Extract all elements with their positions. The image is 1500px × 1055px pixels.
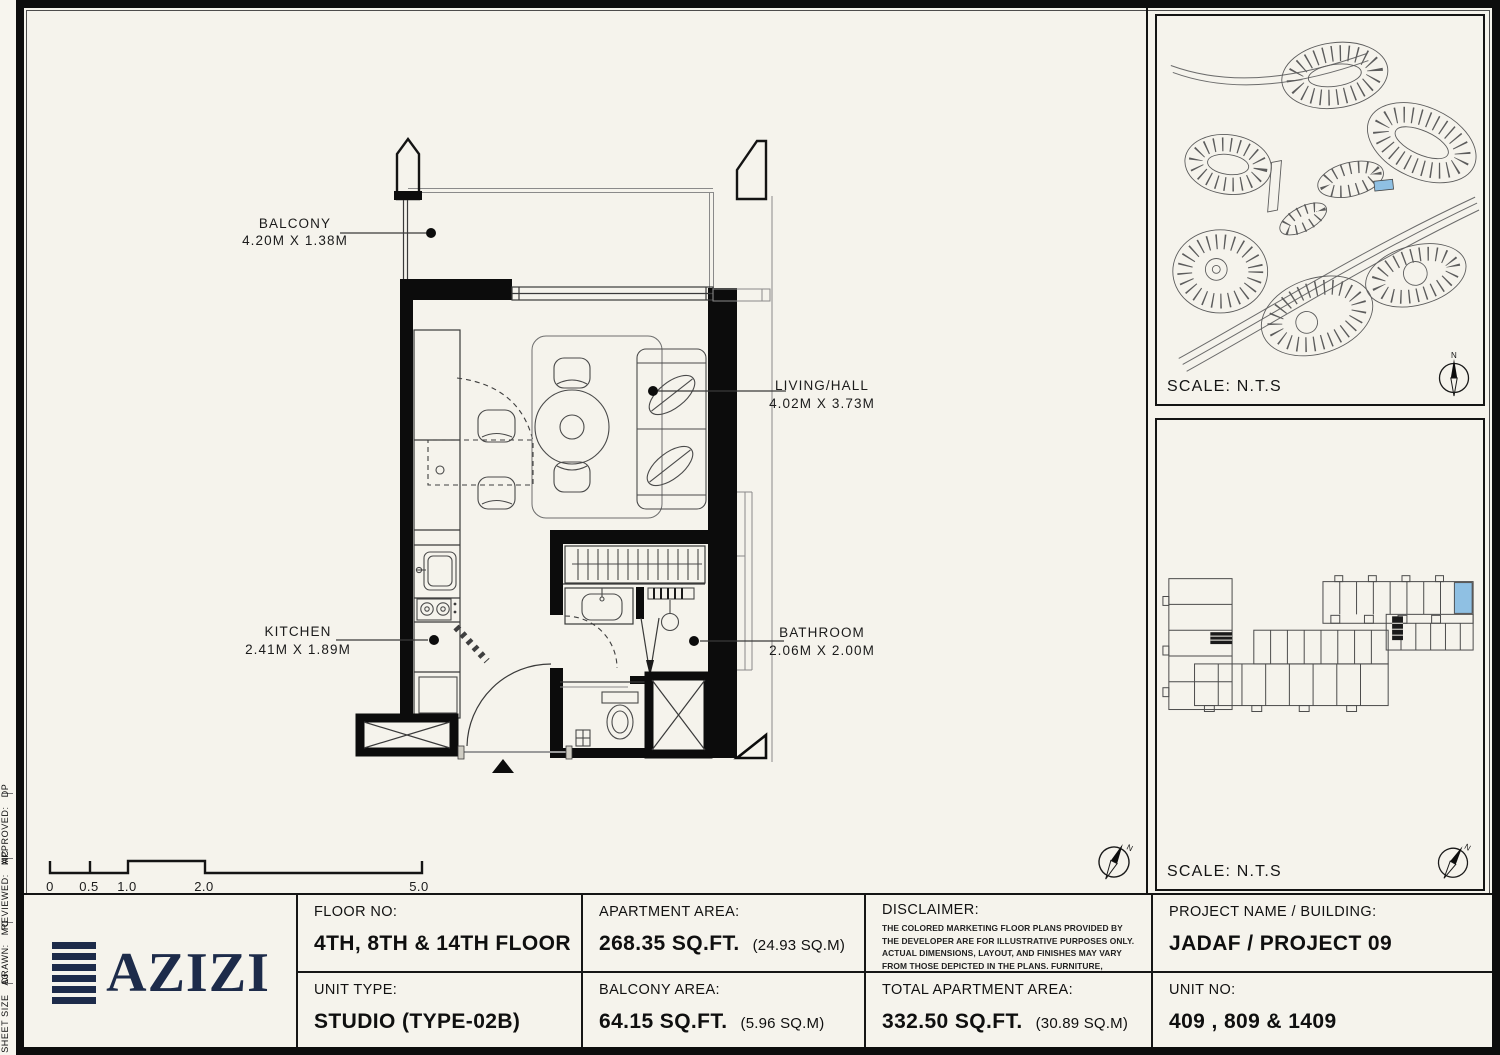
unit-type-cell: UNIT TYPE: STUDIO (TYPE-02B) [296, 971, 581, 1047]
building-key-plan-box: SCALE: N.T.S N [1155, 418, 1485, 891]
wardrobe [563, 546, 705, 584]
living-label: LIVING/HALL [775, 378, 869, 393]
total-area-cell: TOTAL APARTMENT AREA: 332.50 SQ.FT.(30.8… [864, 971, 1151, 1047]
floor-plan-panel: BALCONY 4.20M X 1.38M LIVING/HALL 4.02M … [24, 8, 1148, 893]
wc-cistern [602, 692, 638, 703]
key-plan-drawing [1157, 420, 1483, 889]
highlighted-unit [1454, 583, 1472, 614]
parcel-cluster [1359, 233, 1474, 317]
highlighted-plot [1374, 179, 1394, 191]
unit-no-cell: UNIT NO: 409 , 809 & 1409 [1151, 971, 1492, 1047]
disclaimer-label: DISCLAIMER: [882, 902, 1137, 918]
sheet-frame: BALCONY 4.20M X 1.38M LIVING/HALL 4.02M … [16, 0, 1500, 1055]
parcel-sliver [1268, 161, 1282, 212]
balcony-railing [408, 189, 714, 289]
approved-value: DP [0, 784, 10, 798]
scale-bar: 0 0.5 1.0 2.0 5.0 [46, 861, 429, 893]
floor-no-value: 4TH, 8TH & 14TH FLOOR [314, 932, 567, 956]
azizi-logo: AZIZI [52, 942, 270, 1004]
apartment-area-imperial: 268.35 SQ.FT. [599, 932, 740, 955]
stair-core [1392, 616, 1403, 640]
kitchen-counter [414, 330, 460, 718]
counter-overhang [428, 378, 533, 485]
apartment-area-cell: APARTMENT AREA: 268.35 SQ.FT.(24.93 SQ.M… [581, 895, 864, 971]
north-compass-icon: N [1433, 835, 1475, 883]
compass-n-label: N [1451, 351, 1457, 360]
balcony-pier-left [394, 139, 422, 281]
parcel-cluster [1275, 196, 1331, 241]
shaft-bottom-right [649, 676, 708, 754]
project-name-value: JADAF / PROJECT 09 [1169, 932, 1478, 956]
living-dims: 4.02M X 3.73M [769, 396, 875, 411]
floor-no-cell: FLOOR NO: 4TH, 8TH & 14TH FLOOR [296, 895, 581, 971]
stair-core [1210, 632, 1232, 644]
sheet-revision-strip: APPROVED:DP REVIEWED:MC DRAWN:MC SHEET S… [0, 0, 17, 1055]
disclaimer-cell: DISCLAIMER: THE COLORED MARKETING FLOOR … [864, 895, 1151, 971]
kitchen-label: KITCHEN [265, 624, 332, 639]
bathroom-dims: 2.06M X 2.00M [769, 643, 875, 658]
project-name-label: PROJECT NAME / BUILDING: [1169, 904, 1478, 920]
wc-bowl [607, 705, 633, 739]
chair [478, 410, 515, 442]
north-compass-icon: N [1092, 834, 1138, 886]
balcony-pier-right [737, 141, 766, 199]
chair [554, 358, 590, 388]
floor-plan-sheet: APPROVED:DP REVIEWED:MC DRAWN:MC SHEET S… [0, 0, 1500, 1055]
unit-no-value: 409 , 809 & 1409 [1169, 1010, 1478, 1034]
title-block: AZIZI FLOOR NO: 4TH, 8TH & 14TH FLOOR AP… [24, 893, 1492, 1047]
dining-table [535, 390, 609, 464]
total-area-label: TOTAL APARTMENT AREA: [882, 982, 1137, 998]
floor-plan-drawing: BALCONY 4.20M X 1.38M LIVING/HALL 4.02M … [24, 8, 1146, 893]
vanity-counter [565, 588, 633, 624]
balcony-area-cell: BALCONY AREA: 64.15 SQ.FT.(5.96 SQ.M) [581, 971, 864, 1047]
sheet-size-label: SHEET SIZEA3 [0, 958, 16, 1055]
stove [417, 599, 456, 620]
azizi-logo-text: AZIZI [106, 945, 270, 1001]
azizi-logo-mark-icon [52, 942, 96, 1004]
shower [648, 588, 694, 631]
wash-basin [582, 594, 622, 620]
parcel-cluster [1181, 129, 1275, 200]
sheet-size-caption: SHEET SIZE [0, 994, 10, 1052]
balcony-dims: 4.20M X 1.38M [242, 233, 348, 248]
scale-tick-2: 2.0 [194, 879, 214, 893]
scale-tick-1: 1.0 [117, 879, 137, 893]
total-area-value: 332.50 SQ.FT.(30.89 SQ.M) [882, 1010, 1137, 1034]
unit-no-label: UNIT NO: [1169, 982, 1478, 998]
apartment-area-value: 268.35 SQ.FT.(24.93 SQ.M) [599, 932, 850, 956]
site-map-box: SCALE: N.T.S N [1155, 14, 1485, 406]
balcony-area-imperial: 64.15 SQ.FT. [599, 1010, 728, 1033]
unit-type-value: STUDIO (TYPE-02B) [314, 1010, 567, 1034]
total-area-metric: (30.89 SQ.M) [1036, 1015, 1128, 1032]
sofa [637, 349, 706, 509]
balcony-label: BALCONY [259, 216, 331, 231]
key-plan-column: SCALE: N.T.S N [1150, 8, 1492, 893]
toilet-room [560, 682, 645, 746]
unit-type-label: UNIT TYPE: [314, 982, 567, 998]
north-compass-icon: N [1433, 350, 1475, 398]
total-area-imperial: 332.50 SQ.FT. [882, 1010, 1023, 1033]
bathroom-label: BATHROOM [779, 625, 865, 640]
balcony-area-value: 64.15 SQ.FT.(5.96 SQ.M) [599, 1010, 850, 1034]
site-map-scale: SCALE: N.T.S [1167, 378, 1282, 396]
parcel-cluster [1314, 155, 1387, 204]
shower-door [641, 618, 659, 676]
building-outline [1163, 576, 1473, 712]
logo-cell: AZIZI [24, 895, 296, 1047]
duct-lines [737, 492, 752, 670]
site-map-drawing [1157, 16, 1483, 404]
parcel-cluster [1251, 262, 1383, 369]
chair [554, 462, 590, 492]
project-name-cell: PROJECT NAME / BUILDING: JADAF / PROJECT… [1151, 895, 1492, 971]
drawn-value: MC [0, 920, 10, 935]
kitchen-dims: 2.41M X 1.89M [245, 642, 351, 657]
parcel-cluster [1173, 230, 1268, 313]
balcony-area-metric: (5.96 SQ.M) [741, 1015, 825, 1032]
reviewed-value: MC [0, 850, 10, 865]
key-plan-scale: SCALE: N.T.S [1167, 863, 1282, 881]
apartment-area-metric: (24.93 SQ.M) [753, 937, 845, 954]
apartment-area-label: APARTMENT AREA: [599, 904, 850, 920]
parcel-cluster [1277, 36, 1392, 116]
kitchen-hatch-door [456, 627, 487, 661]
chair [478, 477, 515, 509]
dining-set [478, 336, 662, 518]
sheet-size-value: A3 [0, 973, 10, 985]
compass-n-label: N [1463, 842, 1473, 853]
scale-tick-0: 0 [46, 879, 54, 893]
floor-no-label: FLOOR NO: [314, 904, 567, 920]
entry-marker-icon [492, 759, 514, 773]
shaft-bottom-left [360, 718, 454, 752]
kitchen-sink [416, 552, 456, 590]
wall-end-pier [737, 735, 766, 758]
balcony-area-label: BALCONY AREA: [599, 982, 850, 998]
disclaimer-text: THE COLORED MARKETING FLOOR PLANS PROVID… [882, 922, 1137, 971]
scale-tick-5: 5.0 [409, 879, 429, 893]
compass-n-label: N [1125, 843, 1134, 854]
living-window [512, 287, 713, 300]
scale-tick-05: 0.5 [79, 879, 99, 893]
